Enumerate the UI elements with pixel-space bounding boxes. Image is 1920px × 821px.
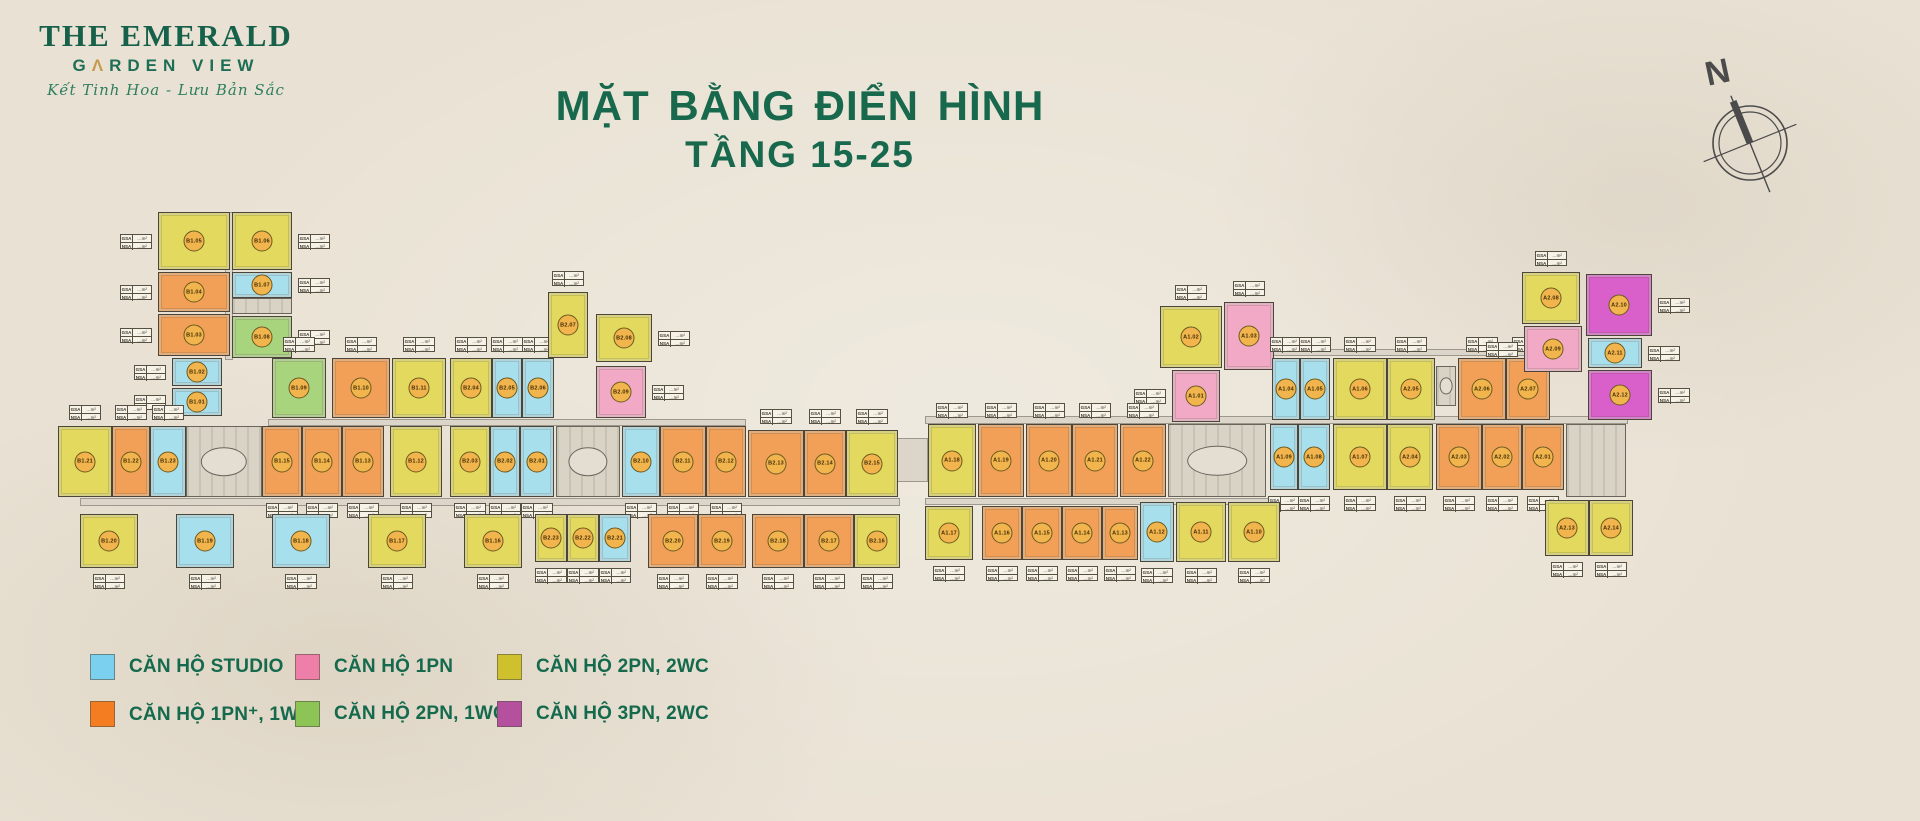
title-line1: MẶT BẰNG ĐIỂN HÌNH	[500, 82, 1100, 130]
unit-area-value: …m²	[1671, 389, 1689, 396]
unit-area-label: GSA	[1396, 338, 1408, 345]
unit-area-label: NSA	[346, 346, 358, 353]
unit-B1.18: B1.18	[272, 514, 330, 568]
unit-area-row: NSA…m²	[653, 394, 683, 401]
unit-B1.16: B1.16	[464, 514, 522, 568]
unit-area-label: NSA	[934, 575, 946, 582]
unit-B1.17: B1.17	[368, 514, 426, 568]
unit-area-table: GSA…m²NSA…m²	[345, 337, 377, 352]
unit-A1.18: A1.18	[928, 424, 976, 497]
unit-area-table: GSA…m²NSA…m²	[1033, 403, 1065, 418]
unit-area-label: NSA	[1467, 346, 1479, 353]
unit-area-row: NSA…m²	[659, 340, 689, 347]
unit-area-value: …m²	[467, 504, 485, 511]
unit-area-value: …m²	[665, 394, 683, 401]
title-line2: TẦNG 15-25	[500, 134, 1100, 176]
unit-area-label: GSA	[121, 329, 133, 336]
unit-badge: B2.06	[528, 378, 549, 399]
unit-area-label: GSA	[1299, 497, 1311, 504]
unit-B1.21: B1.21	[58, 426, 112, 497]
unit-area-value: …m²	[1608, 571, 1626, 578]
unit-area-row: GSA…m²	[568, 569, 598, 577]
unit-area-row: GSA…m²	[1536, 252, 1566, 260]
unit-area-label: NSA	[761, 418, 773, 425]
unit-area-row: NSA…m²	[1300, 346, 1330, 353]
unit-badge: A1.13	[1110, 523, 1131, 544]
unit-area-row: NSA…m²	[1444, 505, 1474, 512]
unit-area-value: …m²	[670, 575, 688, 582]
unit-badge: A2.07	[1518, 379, 1539, 400]
unit-badge: A1.01	[1186, 386, 1207, 407]
unit-area-label: GSA	[346, 338, 358, 345]
unit-area-label: GSA	[1487, 343, 1499, 350]
unit-area-value: …m²	[998, 412, 1016, 419]
unit-area-label: GSA	[1300, 338, 1312, 345]
unit-badge: A1.06	[1350, 379, 1371, 400]
unit-area-value: …m²	[1357, 497, 1375, 504]
unit-area-row: NSA…m²	[763, 583, 793, 590]
unit-area-value: …m²	[413, 504, 431, 511]
unit-area-value: …m²	[1407, 497, 1425, 504]
unit-area-row: GSA…m²	[600, 569, 630, 577]
unit-area-label: GSA	[1649, 347, 1661, 354]
unit-area-row: GSA…m²	[1596, 563, 1626, 571]
unit-area-label: NSA	[382, 583, 394, 590]
unit-area-row: GSA…m²	[121, 329, 151, 337]
unit-area-row: GSA…m²	[658, 575, 688, 583]
unit-area-row: NSA…m²	[135, 374, 165, 381]
unit-area-row: GSA…m²	[348, 504, 378, 512]
unit-area-label: GSA	[455, 504, 467, 511]
unit-area-label: GSA	[763, 575, 775, 582]
unit-area-row: GSA…m²	[121, 235, 151, 243]
building-core	[186, 426, 262, 497]
unit-area-value: …m²	[1251, 577, 1269, 584]
unit-area-value: …m²	[490, 583, 508, 590]
svg-text:N: N	[1702, 51, 1734, 93]
unit-area-row: GSA…m²	[522, 504, 552, 512]
unit-area-row: NSA…m²	[121, 337, 151, 344]
unit-A1.05: A1.05	[1300, 358, 1330, 420]
unit-A1.01: A1.01	[1172, 370, 1220, 422]
legend-label: CĂN HỘ 1PN	[334, 656, 453, 678]
unit-area-label: NSA	[810, 418, 822, 425]
unit-area-label: NSA	[1345, 505, 1357, 512]
unit-area-label: GSA	[1128, 404, 1140, 411]
unit-area-label: NSA	[1536, 260, 1548, 267]
unit-A2.13: A2.13	[1545, 500, 1589, 556]
unit-area-label: NSA	[1659, 397, 1671, 404]
unit-A1.09: A1.09	[1270, 424, 1298, 490]
unit-area-label: GSA	[658, 575, 670, 582]
unit-area-row: NSA…m²	[121, 294, 151, 301]
unit-area-row: NSA…m²	[1487, 505, 1517, 512]
unit-area-table: GSA…m²NSA…m²	[856, 409, 888, 424]
unit-area-row: GSA…m²	[284, 338, 314, 346]
unit-area-row: NSA…m²	[1186, 577, 1216, 584]
unit-area-value: …m²	[1246, 290, 1264, 297]
brand-tagline: Kết Tinh Hoa - Lưu Bản Sắc	[36, 81, 296, 99]
legend-item-2pn1wc: CĂN HỘ 2PN, 1WC	[295, 701, 507, 727]
unit-area-table: GSA…m²NSA…m²	[381, 574, 413, 589]
unit-area-value: …m²	[773, 410, 791, 417]
unit-area-value: …m²	[1311, 505, 1329, 512]
unit-area-value: …m²	[147, 396, 165, 403]
unit-area-row: GSA…m²	[1234, 282, 1264, 290]
unit-area-label: GSA	[761, 410, 773, 417]
unit-area-row: GSA…m²	[1142, 569, 1172, 577]
unit-badge: A1.19	[991, 450, 1012, 471]
unit-area-label: GSA	[1528, 497, 1540, 504]
unit-area-label: GSA	[711, 504, 723, 511]
unit-A1.13: A1.13	[1102, 506, 1138, 560]
unit-badge: A1.02	[1181, 327, 1202, 348]
unit-B1.19: B1.19	[176, 514, 234, 568]
unit-area-row: GSA…m²	[478, 575, 508, 583]
legend-swatch-1pn_plus	[90, 701, 115, 727]
unit-area-row: GSA…m²	[934, 567, 964, 575]
unit-area-table: GSA…m²NSA…m²	[477, 574, 509, 589]
unit-area-value: …m²	[1456, 497, 1474, 504]
unit-area-row: GSA…m²	[1105, 567, 1135, 575]
unit-area-value: …m²	[1246, 282, 1264, 289]
unit-area-row: NSA…m²	[814, 583, 844, 590]
page-title: MẶT BẰNG ĐIỂN HÌNH TẦNG 15-25	[500, 82, 1100, 176]
unit-area-value: …m²	[1198, 577, 1216, 584]
unit-area-table: GSA…m²NSA…m²	[283, 337, 315, 352]
unit-badge: A1.17	[939, 523, 960, 544]
unit-area-value: …m²	[133, 286, 151, 293]
unit-area-label: GSA	[267, 504, 279, 511]
unit-area-value: …m²	[133, 337, 151, 344]
unit-area-table: GSA…m²NSA…m²	[1134, 389, 1166, 404]
unit-area-value: …m²	[468, 338, 486, 345]
unit-area-label: GSA	[810, 410, 822, 417]
unit-A2.04: A2.04	[1387, 424, 1433, 490]
unit-area-label: NSA	[153, 414, 165, 421]
unit-area-label: GSA	[70, 406, 82, 413]
unit-A1.21: A1.21	[1072, 424, 1118, 497]
unit-area-value: …m²	[1661, 355, 1679, 362]
unit-area-row: GSA…m²	[1034, 404, 1064, 412]
unit-area-label: GSA	[568, 569, 580, 576]
unit-A1.08: A1.08	[1298, 424, 1330, 490]
unit-area-row: NSA…m²	[478, 583, 508, 590]
unit-B2.17: B2.17	[804, 514, 854, 568]
unit-area-label: NSA	[1239, 577, 1251, 584]
unit-area-table: GSA…m²NSA…m²	[809, 409, 841, 424]
unit-area-value: …m²	[298, 583, 316, 590]
unit-area-table: GSA…m²NSA…m²	[69, 405, 101, 420]
unit-area-row: GSA…m²	[707, 575, 737, 583]
unit-area-row: NSA…m²	[1142, 577, 1172, 584]
unit-area-value: …m²	[775, 575, 793, 582]
unit-B1.15: B1.15	[262, 426, 302, 497]
unit-area-label: NSA	[553, 280, 565, 287]
unit-B2.09: B2.09	[596, 366, 646, 418]
unit-A1.20: A1.20	[1026, 424, 1072, 497]
unit-area-label: GSA	[1345, 497, 1357, 504]
unit-area-label: NSA	[286, 583, 298, 590]
unit-area-row: GSA…m²	[1128, 404, 1158, 412]
unit-area-row: NSA…m²	[1234, 290, 1264, 297]
unit-B2.14: B2.14	[804, 430, 846, 497]
unit-area-table: GSA…m²NSA…m²	[1185, 568, 1217, 583]
unit-area-row: NSA…m²	[1395, 505, 1425, 512]
unit-A1.02: A1.02	[1160, 306, 1222, 368]
unit-area-row: GSA…m²	[987, 567, 1017, 575]
unit-area-value: …m²	[949, 404, 967, 411]
unit-area-row: NSA…m²	[1176, 294, 1206, 301]
unit-A2.03: A2.03	[1436, 424, 1482, 490]
unit-area-row: GSA…m²	[1649, 347, 1679, 355]
unit-area-row: NSA…m²	[810, 418, 840, 425]
stair-oval	[201, 447, 247, 477]
unit-B2.19: B2.19	[698, 514, 746, 568]
building-core	[1168, 424, 1266, 497]
unit-area-row: NSA…m²	[600, 577, 630, 584]
unit-area-label: GSA	[1080, 404, 1092, 411]
unit-area-row: NSA…m²	[1239, 577, 1269, 584]
unit-area-row: GSA…m²	[1345, 338, 1375, 346]
unit-area-value: …m²	[1357, 505, 1375, 512]
unit-badge: A1.05	[1305, 379, 1326, 400]
unit-area-row: NSA…m²	[153, 414, 183, 421]
unit-area-row: GSA…m²	[553, 272, 583, 280]
unit-area-table: GSA…m²NSA…m²	[535, 568, 567, 583]
unit-badge: B2.17	[819, 531, 840, 552]
unit-area-label: GSA	[1135, 390, 1147, 397]
unit-area-table: GSA…m²NSA…m²	[1298, 496, 1330, 511]
unit-area-row: GSA…m²	[763, 575, 793, 583]
unit-badge: A1.09	[1274, 447, 1295, 468]
unit-area-value: …m²	[1198, 569, 1216, 576]
unit-badge: B2.14	[815, 453, 836, 474]
unit-area-label: NSA	[1395, 505, 1407, 512]
unit-area-value: …m²	[416, 346, 434, 353]
unit-area-label: NSA	[1396, 346, 1408, 353]
legend-item-studio: CĂN HỘ STUDIO	[90, 654, 284, 680]
unit-area-row: GSA…m²	[190, 575, 220, 583]
unit-area-table: GSA…m²NSA…m²	[1486, 342, 1518, 357]
unit-badge: B1.07	[252, 275, 273, 296]
unit-area-value: …m²	[548, 577, 566, 584]
unit-area-label: NSA	[862, 583, 874, 590]
unit-area-label: GSA	[1395, 497, 1407, 504]
unit-area-row: GSA…m²	[70, 406, 100, 414]
unit-area-value: …m²	[612, 577, 630, 584]
unit-area-row: NSA…m²	[568, 577, 598, 584]
unit-area-row: NSA…m²	[987, 575, 1017, 582]
unit-A2.02: A2.02	[1482, 424, 1522, 490]
unit-area-label: NSA	[857, 418, 869, 425]
unit-area-label: GSA	[299, 235, 311, 242]
unit-area-value: …m²	[1608, 563, 1626, 570]
unit-area-table: GSA…m²NSA…m²	[1026, 566, 1058, 581]
unit-A1.12: A1.12	[1140, 502, 1174, 562]
unit-area-label: NSA	[492, 346, 504, 353]
unit-badge: A1.21	[1085, 450, 1106, 471]
unit-area-label: GSA	[600, 569, 612, 576]
unit-area-label: NSA	[116, 414, 128, 421]
unit-badge: B2.09	[611, 382, 632, 403]
unit-area-table: GSA…m²NSA…m²	[298, 278, 330, 293]
unit-B1.07: B1.07	[232, 272, 292, 298]
unit-area-value: …m²	[612, 569, 630, 576]
unit-area-table: GSA…m²NSA…m²	[985, 403, 1017, 418]
unit-area-table: GSA…m²NSA…m²	[285, 574, 317, 589]
unit-area-row: NSA…m²	[1596, 571, 1626, 578]
unit-area-label: NSA	[658, 583, 670, 590]
unit-area-table: GSA…m²NSA…m²	[1344, 496, 1376, 511]
unit-area-row: NSA…m²	[1271, 346, 1301, 353]
unit-B2.04: B2.04	[450, 358, 492, 418]
unit-area-value: …m²	[1408, 346, 1426, 353]
unit-area-value: …m²	[1456, 505, 1474, 512]
unit-area-row: NSA…m²	[1659, 397, 1689, 404]
unit-A1.06: A1.06	[1333, 358, 1387, 420]
unit-area-value: …m²	[773, 418, 791, 425]
unit-area-label: NSA	[763, 583, 775, 590]
unit-B1.06: B1.06	[232, 212, 292, 270]
unit-area-label: GSA	[404, 338, 416, 345]
unit-area-label: NSA	[1528, 505, 1540, 512]
unit-area-label: GSA	[490, 504, 502, 511]
unit-area-label: NSA	[1128, 412, 1140, 419]
unit-area-row: GSA…m²	[814, 575, 844, 583]
unit-badge: B2.20	[663, 531, 684, 552]
unit-area-value: …m²	[1499, 497, 1517, 504]
unit-badge: B2.11	[673, 451, 694, 472]
unit-area-table: GSA…m²NSA…m²	[93, 574, 125, 589]
unit-area-label: NSA	[1552, 571, 1564, 578]
unit-B2.10: B2.10	[622, 426, 660, 497]
unit-area-label: GSA	[862, 575, 874, 582]
unit-area-table: GSA…m²NSA…m²	[455, 337, 487, 352]
unit-area-row: GSA…m²	[1659, 389, 1689, 397]
unit-area-label: GSA	[299, 279, 311, 286]
unit-area-table: GSA…m²NSA…m²	[1486, 496, 1518, 511]
building-core	[1436, 366, 1456, 406]
unit-area-row: NSA…m²	[658, 583, 688, 590]
unit-area-value: …m²	[128, 406, 146, 413]
unit-area-label: NSA	[937, 412, 949, 419]
unit-area-label: NSA	[986, 412, 998, 419]
unit-area-label: NSA	[190, 583, 202, 590]
unit-area-value: …m²	[165, 414, 183, 421]
unit-area-table: GSA…m²NSA…m²	[1141, 568, 1173, 583]
unit-area-value: …m²	[1188, 294, 1206, 301]
unit-area-value: …m²	[165, 406, 183, 413]
unit-area-label: NSA	[121, 243, 133, 250]
legend-label: CĂN HỘ STUDIO	[129, 656, 284, 678]
unit-area-row: NSA…m²	[404, 346, 434, 353]
unit-B1.10: B1.10	[332, 358, 390, 418]
unit-area-label: GSA	[1596, 563, 1608, 570]
unit-area-row: NSA…m²	[1659, 307, 1689, 314]
unit-area-row: NSA…m²	[862, 583, 892, 590]
unit-area-label: GSA	[1552, 563, 1564, 570]
unit-area-row: GSA…m²	[1271, 338, 1301, 346]
unit-area-label: GSA	[1444, 497, 1456, 504]
corridor	[268, 419, 746, 426]
unit-area-row: GSA…m²	[668, 504, 698, 512]
unit-A1.11: A1.11	[1176, 502, 1226, 562]
unit-B2.16: B2.16	[854, 514, 900, 568]
unit-area-value: …m²	[468, 346, 486, 353]
unit-area-value: …m²	[1154, 569, 1172, 576]
unit-B1.13: B1.13	[342, 426, 384, 497]
unit-area-table: GSA…m²NSA…m²	[599, 568, 631, 583]
legend-swatch-2pn1wc	[295, 701, 320, 727]
unit-B2.23: B2.23	[535, 514, 567, 562]
legend-item-3pn2wc: CĂN HỘ 3PN, 2WC	[497, 701, 709, 727]
stair-oval	[568, 447, 607, 477]
unit-badge: A1.11	[1191, 522, 1212, 543]
unit-A2.01: A2.01	[1522, 424, 1564, 490]
unit-area-value: …m²	[82, 406, 100, 413]
unit-area-value: …m²	[1140, 404, 1158, 411]
unit-area-value: …m²	[133, 329, 151, 336]
unit-badge: B2.08	[614, 328, 635, 349]
unit-area-value: …m²	[565, 272, 583, 279]
unit-area-row: NSA…m²	[536, 577, 566, 584]
unit-area-label: GSA	[536, 569, 548, 576]
unit-area-value: …m²	[133, 235, 151, 242]
unit-A1.16: A1.16	[982, 506, 1022, 560]
unit-A2.09: A2.09	[1524, 326, 1582, 372]
unit-area-row: NSA…m²	[1067, 575, 1097, 582]
unit-area-value: …m²	[822, 418, 840, 425]
unit-area-row: NSA…m²	[1536, 260, 1566, 267]
unit-badge: A2.05	[1401, 379, 1422, 400]
unit-area-row: GSA…m²	[1396, 338, 1426, 346]
unit-A2.14: A2.14	[1589, 500, 1633, 556]
unit-area-label: NSA	[1234, 290, 1246, 297]
unit-area-label: GSA	[121, 286, 133, 293]
unit-area-value: …m²	[665, 386, 683, 393]
unit-area-label: NSA	[404, 346, 416, 353]
unit-area-value: …m²	[999, 575, 1017, 582]
unit-area-value: …m²	[1092, 404, 1110, 411]
unit-area-label: NSA	[1659, 307, 1671, 314]
legend-item-1pn_plus: CĂN HỘ 1PN⁺, 1WC	[90, 701, 312, 727]
unit-area-value: …m²	[580, 569, 598, 576]
unit-area-label: NSA	[1271, 346, 1283, 353]
unit-area-row: GSA…m²	[1067, 567, 1097, 575]
unit-area-value: …m²	[580, 577, 598, 584]
unit-area-value: …m²	[311, 287, 329, 294]
unit-area-row: GSA…m²	[1395, 497, 1425, 505]
unit-area-row: NSA…m²	[1034, 412, 1064, 419]
unit-badge: A1.10	[1244, 522, 1265, 543]
unit-area-table: GSA…m²NSA…m²	[1238, 568, 1270, 583]
unit-A2.05: A2.05	[1387, 358, 1435, 420]
unit-A1.22: A1.22	[1120, 424, 1166, 497]
unit-area-label: GSA	[1186, 569, 1198, 576]
unit-badge: B1.14	[312, 451, 333, 472]
unit-area-value: …m²	[1039, 567, 1057, 574]
corridor	[896, 438, 928, 482]
unit-area-row: GSA…m²	[1552, 563, 1582, 571]
unit-area-row: GSA…m²	[299, 235, 329, 243]
unit-area-value: …m²	[1499, 343, 1517, 350]
unit-area-label: GSA	[653, 386, 665, 393]
unit-area-value: …m²	[999, 567, 1017, 574]
unit-area-value: …m²	[534, 504, 552, 511]
unit-A1.03: A1.03	[1224, 302, 1274, 370]
unit-A2.10: A2.10	[1586, 274, 1652, 336]
